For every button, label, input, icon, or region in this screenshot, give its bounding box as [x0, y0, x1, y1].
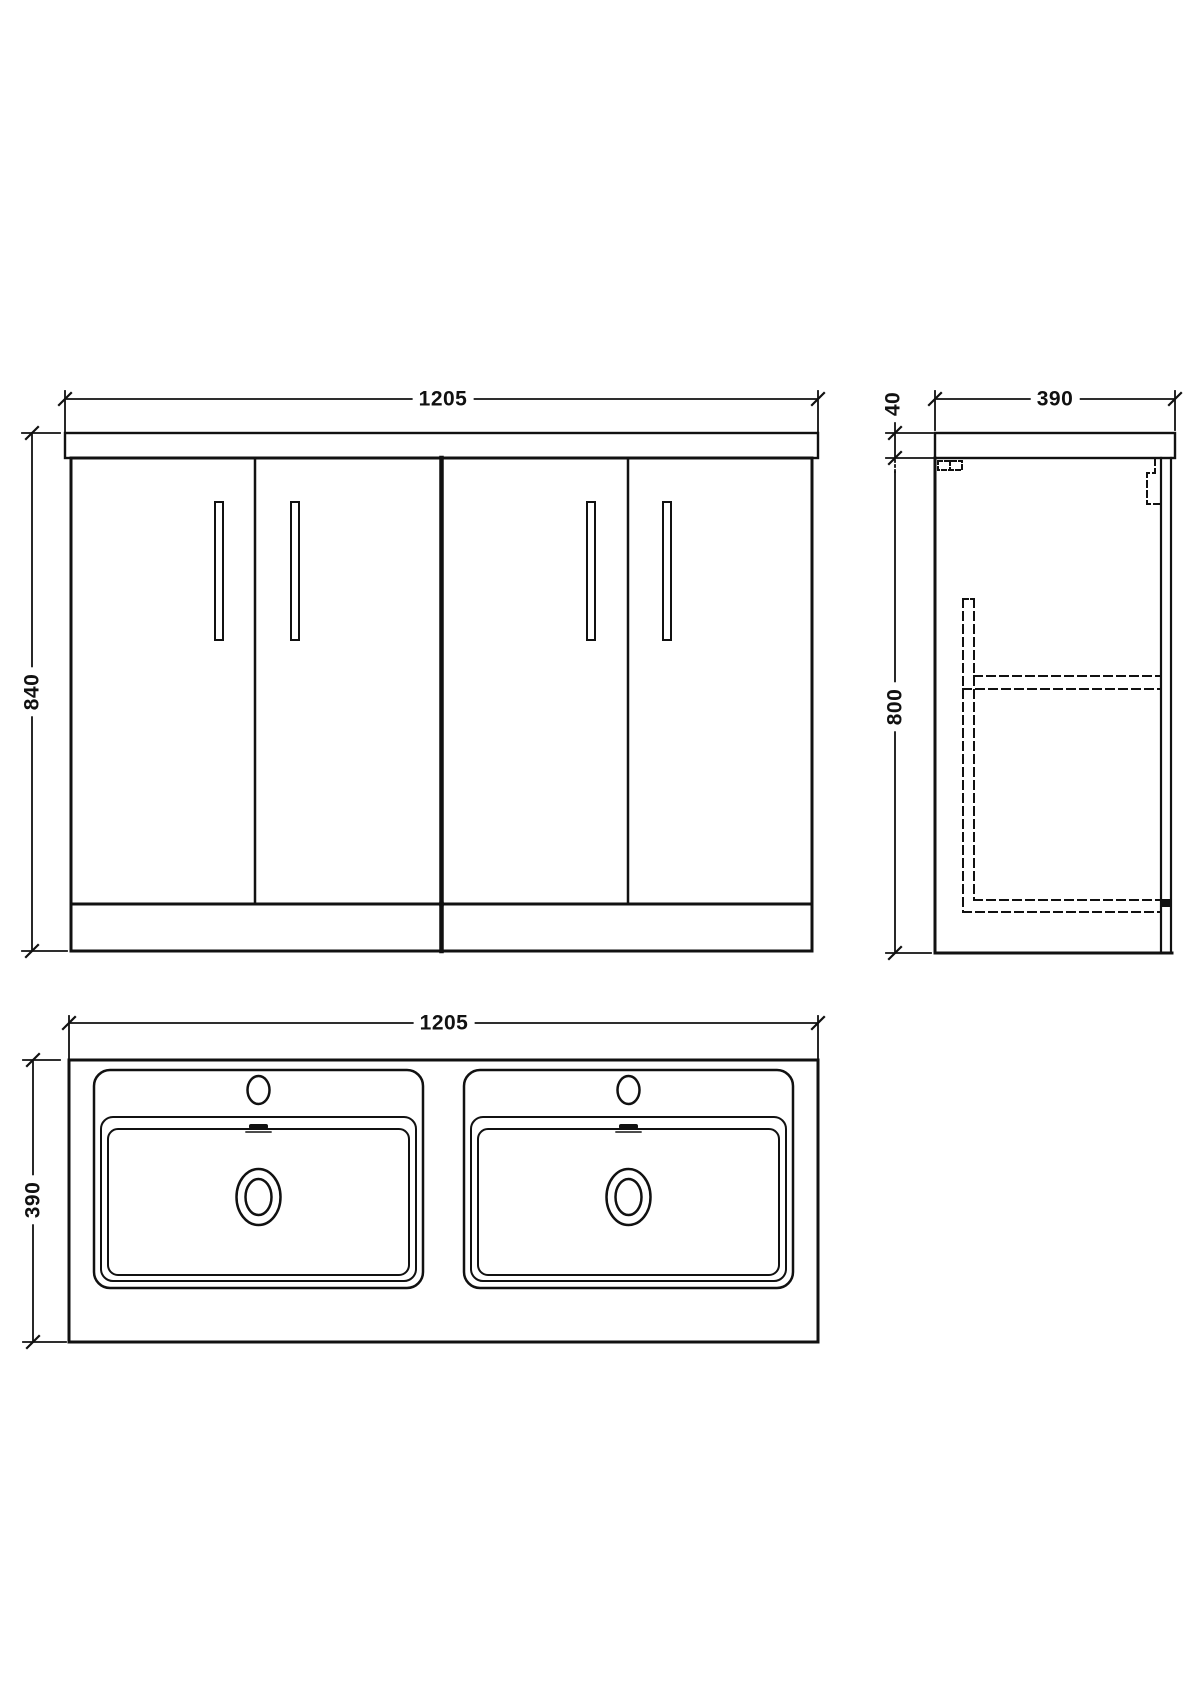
overflow-slot	[249, 1124, 268, 1129]
side-hinge-block	[1161, 899, 1171, 907]
basin-bowl-outer	[471, 1117, 786, 1281]
waste-drain-outer	[607, 1169, 651, 1225]
waste-drain-inner	[616, 1179, 642, 1215]
door-handle	[663, 502, 671, 640]
side-countertop	[935, 433, 1175, 458]
front-height-label: 840	[22, 668, 43, 717]
tap-hole	[618, 1076, 640, 1104]
door-handle	[291, 502, 299, 640]
tap-hole	[248, 1076, 270, 1104]
side-view	[886, 391, 1181, 959]
basin-bowl-inner	[108, 1129, 409, 1275]
door-handle	[587, 502, 595, 640]
plan-depth-label: 390	[23, 1176, 44, 1225]
side-cabinet-height-label: 800	[885, 683, 906, 732]
front-width-label: 1205	[413, 389, 474, 410]
technical-drawing	[0, 0, 1200, 1698]
waste-drain-outer	[237, 1169, 281, 1225]
side-counter-thickness-label: 40	[883, 386, 904, 422]
waste-drain-inner	[246, 1179, 272, 1215]
basin-bowl-inner	[478, 1129, 779, 1275]
overflow-slot	[619, 1124, 638, 1129]
basin-bowl-outer	[101, 1117, 416, 1281]
plan-view	[23, 1016, 824, 1348]
front-view	[22, 391, 824, 957]
drawing-sheet: 1205 840 390 40 800 1205 390	[0, 0, 1200, 1698]
plan-width-label: 1205	[414, 1013, 475, 1034]
door-handle	[215, 502, 223, 640]
side-thickness-dimension	[886, 415, 933, 472]
plan-countertop-outline	[69, 1060, 818, 1342]
plan-basin-right	[464, 1070, 793, 1288]
plan-basin-left	[94, 1070, 423, 1288]
side-hidden-details	[938, 459, 1161, 912]
side-depth-label: 390	[1031, 389, 1080, 410]
front-countertop	[65, 433, 818, 458]
